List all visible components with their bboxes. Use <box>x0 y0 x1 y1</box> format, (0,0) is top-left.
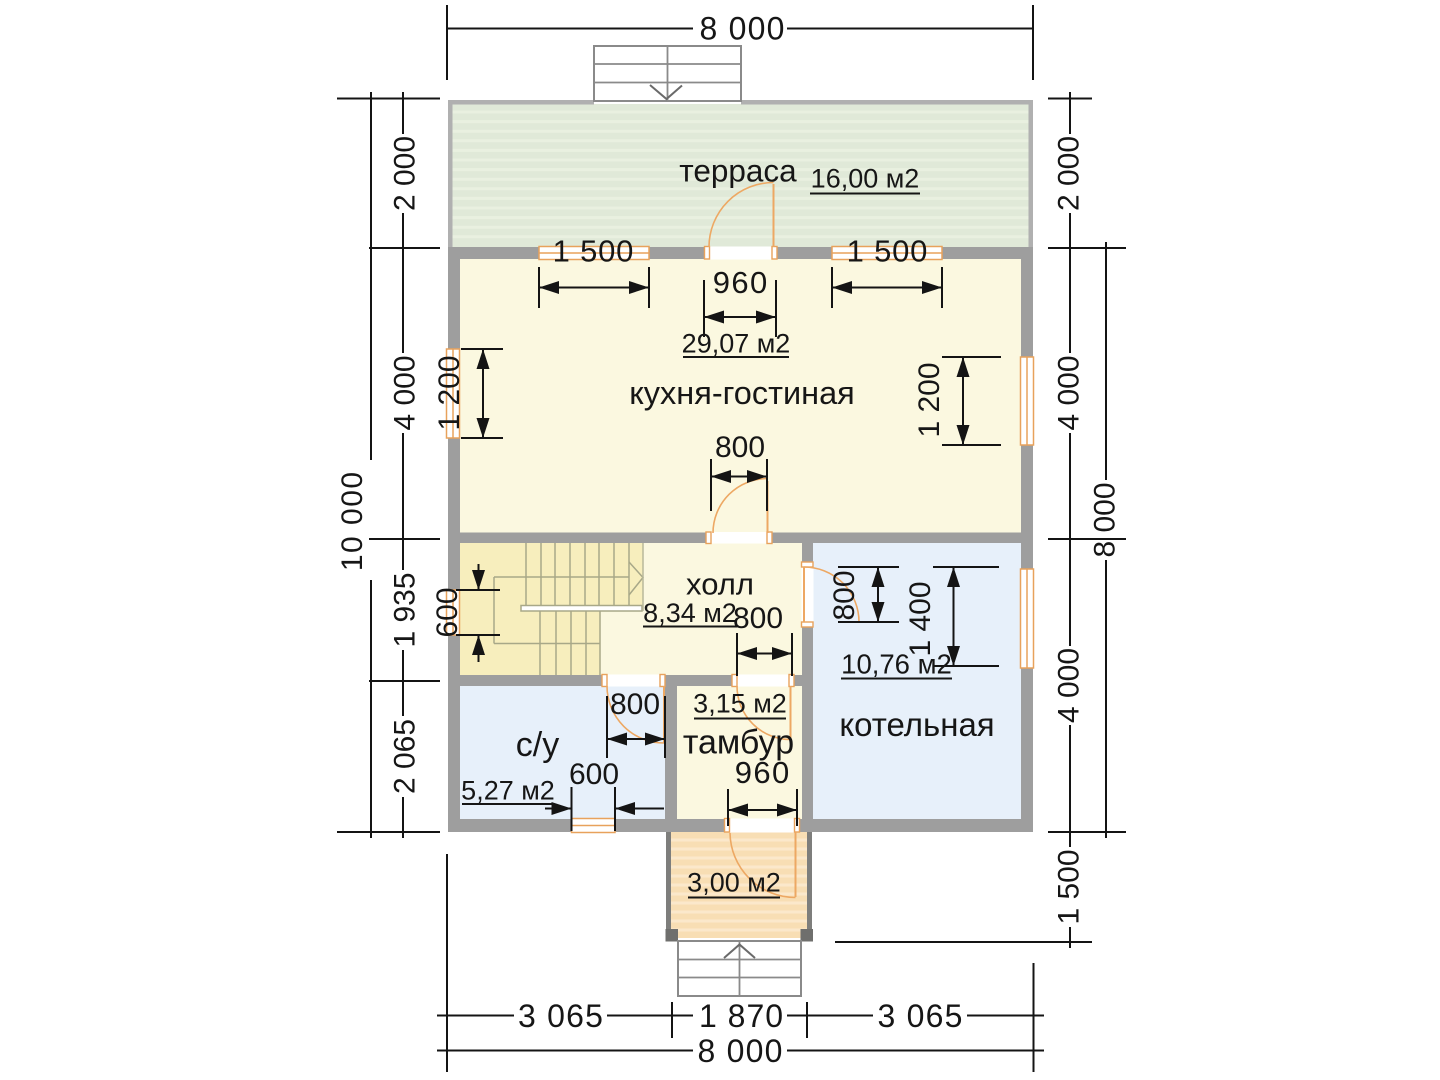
svg-text:1 500: 1 500 <box>847 234 929 269</box>
svg-text:1 200: 1 200 <box>433 355 466 430</box>
svg-text:8,34 м2: 8,34 м2 <box>643 598 737 628</box>
svg-text:960: 960 <box>735 755 791 790</box>
svg-text:кухня-гостиная: кухня-гостиная <box>629 375 855 411</box>
svg-text:29,07 м2: 29,07 м2 <box>682 329 791 359</box>
svg-text:4 000: 4 000 <box>389 355 422 430</box>
svg-text:16,00 м2: 16,00 м2 <box>811 164 920 194</box>
svg-text:4 000: 4 000 <box>1053 355 1086 430</box>
svg-text:800: 800 <box>610 688 660 721</box>
svg-text:5,27 м2: 5,27 м2 <box>461 776 555 806</box>
svg-text:3 065: 3 065 <box>518 998 604 1034</box>
svg-text:8 000: 8 000 <box>698 1033 784 1069</box>
svg-text:1 935: 1 935 <box>389 572 422 647</box>
svg-text:холл: холл <box>686 567 754 602</box>
svg-text:1 870: 1 870 <box>699 998 784 1034</box>
svg-text:котельная: котельная <box>839 706 994 743</box>
svg-text:600: 600 <box>431 587 464 637</box>
svg-text:8 000: 8 000 <box>1089 482 1122 557</box>
svg-text:3 065: 3 065 <box>878 998 964 1034</box>
svg-text:с/у: с/у <box>516 726 559 764</box>
svg-text:8 000: 8 000 <box>700 11 786 47</box>
svg-text:800: 800 <box>715 431 765 464</box>
svg-text:960: 960 <box>713 265 769 300</box>
svg-text:3,00 м2: 3,00 м2 <box>687 868 781 898</box>
svg-text:600: 600 <box>569 758 619 791</box>
svg-text:2 000: 2 000 <box>389 136 422 211</box>
svg-text:2 000: 2 000 <box>1053 136 1086 211</box>
svg-text:1 400: 1 400 <box>904 581 937 656</box>
svg-text:3,15 м2: 3,15 м2 <box>693 689 787 719</box>
svg-text:10 000: 10 000 <box>336 470 369 571</box>
svg-text:1 200: 1 200 <box>913 362 946 437</box>
svg-text:2 065: 2 065 <box>389 719 422 794</box>
svg-text:терраса: терраса <box>679 153 797 189</box>
svg-text:4 000: 4 000 <box>1053 648 1086 723</box>
svg-text:1 500: 1 500 <box>553 234 635 269</box>
svg-text:800: 800 <box>828 570 861 620</box>
svg-text:800: 800 <box>733 602 783 635</box>
svg-text:1 500: 1 500 <box>1053 849 1086 924</box>
